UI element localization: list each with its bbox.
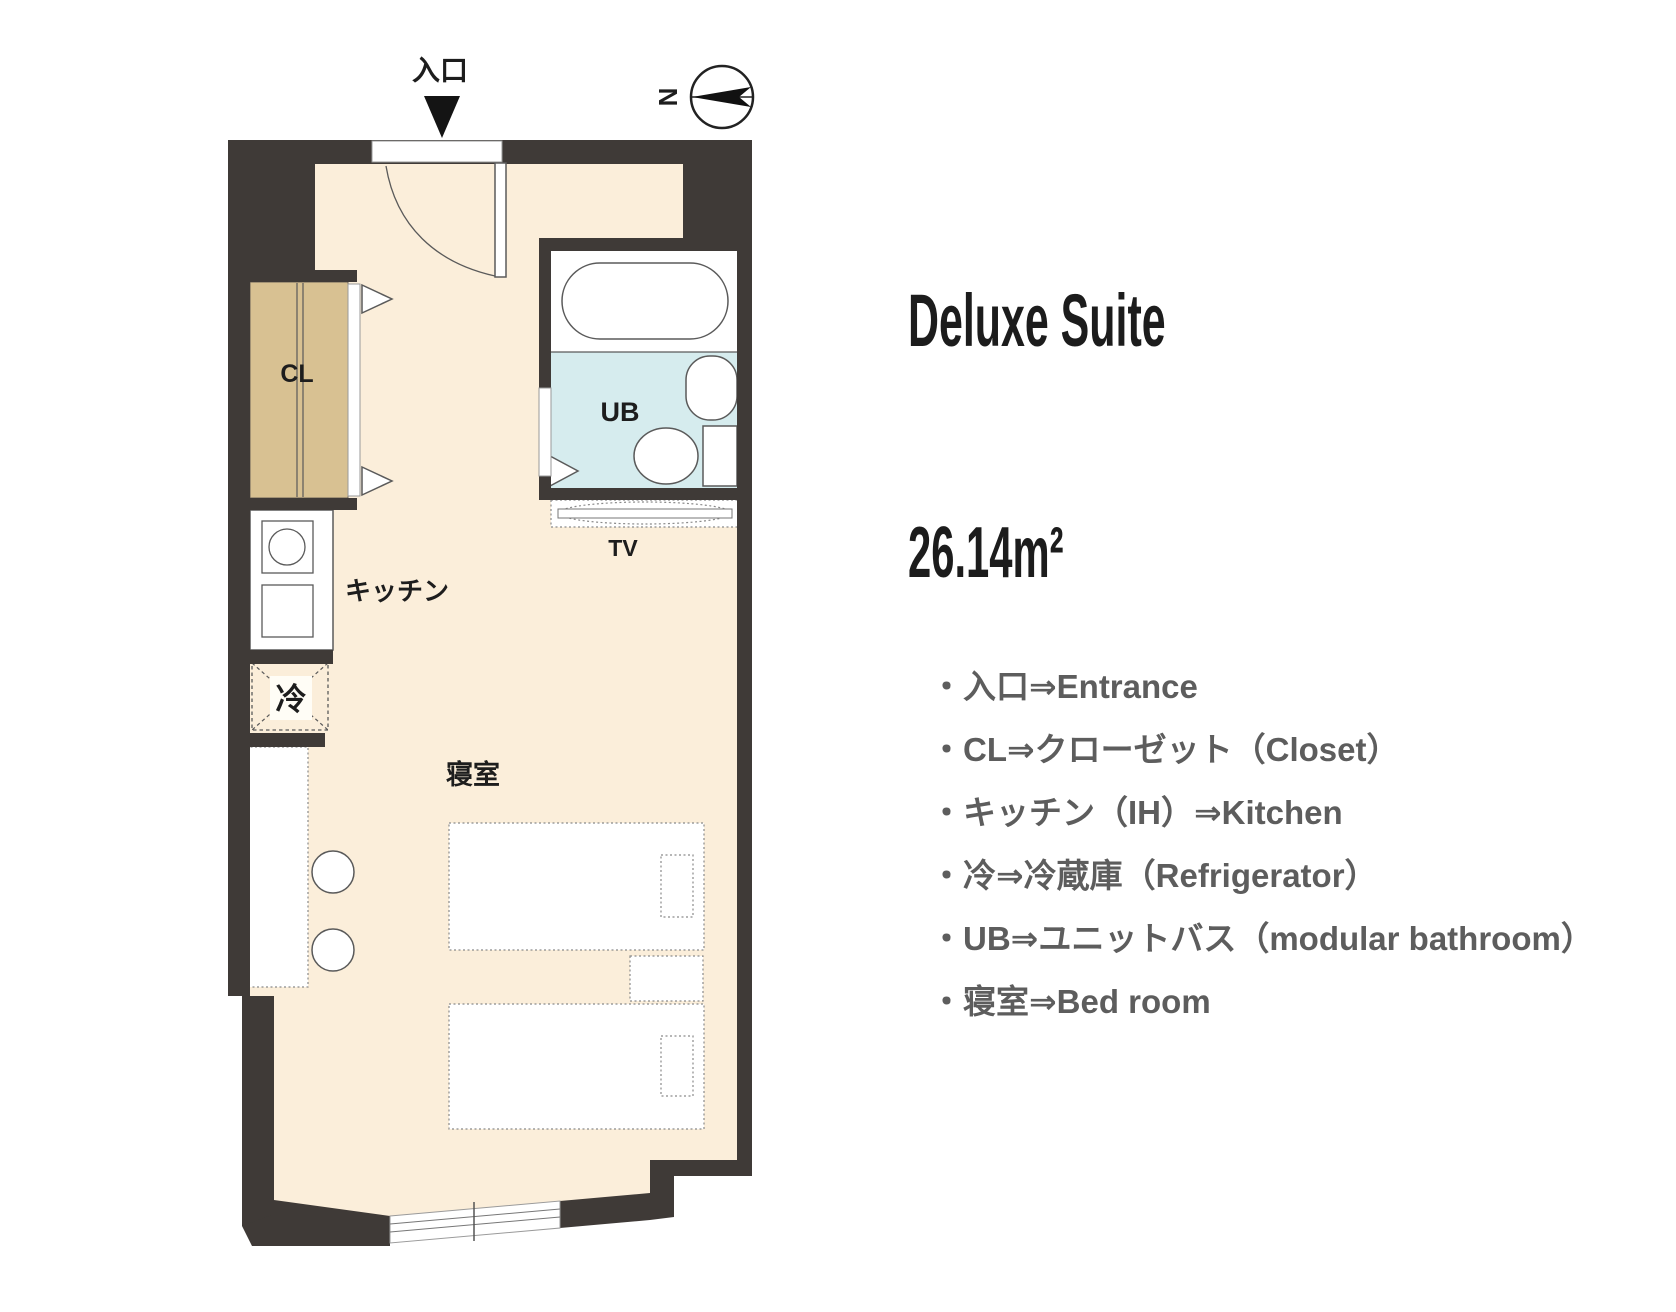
legend-item-entrance: ・入口⇒Entrance bbox=[930, 652, 1594, 715]
legend-item-unit-bath: ・UB⇒ユニットバス（modular bathroom） bbox=[930, 904, 1594, 967]
wall-segment bbox=[248, 270, 357, 282]
wall-segment bbox=[242, 733, 325, 747]
wall-segment bbox=[683, 164, 737, 238]
toilet-bowl bbox=[634, 428, 698, 484]
wall-segment bbox=[650, 1160, 752, 1176]
wall-segment bbox=[242, 996, 274, 1226]
refrigerator-label: 冷 bbox=[276, 682, 307, 717]
toilet-tank bbox=[703, 426, 737, 486]
tv-board bbox=[551, 500, 741, 527]
wall-segment bbox=[539, 251, 551, 388]
counter bbox=[246, 747, 308, 987]
closet-door-track bbox=[348, 284, 360, 496]
stool bbox=[312, 929, 354, 971]
bathroom-sink bbox=[686, 356, 737, 420]
compass-north-label: N bbox=[653, 88, 683, 107]
entrance-doorway bbox=[372, 141, 502, 162]
closet-label: CL bbox=[280, 360, 313, 388]
entrance-label: 入口 bbox=[412, 55, 468, 86]
legend-item-closet: ・CL⇒クローゼット（Closet） bbox=[930, 715, 1594, 778]
bath-label: UB bbox=[601, 397, 640, 427]
pillow bbox=[661, 1036, 693, 1096]
wall-segment bbox=[737, 164, 752, 1176]
pillow bbox=[661, 855, 693, 917]
entrance-door-leaf bbox=[495, 163, 506, 277]
legend-item-kitchen: ・キッチン（IH）⇒Kitchen bbox=[930, 778, 1594, 841]
bath-door-opening bbox=[539, 388, 551, 476]
bathtub bbox=[562, 263, 728, 339]
floor-area-value: 26.14m² bbox=[908, 512, 1064, 594]
wall-segment bbox=[539, 488, 752, 500]
bedroom-label: 寝室 bbox=[446, 759, 500, 790]
page-title: Deluxe Suite bbox=[908, 278, 1166, 363]
legend-item-refrigerator: ・冷⇒冷蔵庫（Refrigerator） bbox=[930, 841, 1594, 904]
wall-segment bbox=[539, 238, 737, 251]
closet-area bbox=[250, 282, 348, 498]
wall-segment bbox=[250, 164, 315, 270]
kitchen-label: キッチン bbox=[345, 576, 449, 606]
stool bbox=[312, 851, 354, 893]
nightstand bbox=[630, 956, 703, 1001]
tv-label: TV bbox=[608, 535, 638, 561]
legend: ・入口⇒Entrance ・CL⇒クローゼット（Closet） ・キッチン（IH… bbox=[930, 652, 1594, 1030]
floor-plan-page: 入口 N CL UB TV キッチン 冷 寝室 Deluxe Suite 26.… bbox=[0, 0, 1676, 1312]
entrance-arrow-icon bbox=[424, 96, 460, 138]
floor-plan-drawing: 入口 N CL UB TV キッチン 冷 寝室 bbox=[0, 0, 820, 1312]
wall-segment bbox=[248, 650, 333, 664]
wall-segment bbox=[248, 498, 357, 510]
compass-icon: N bbox=[653, 66, 753, 128]
wall-segment bbox=[228, 164, 250, 996]
legend-item-bedroom: ・寝室⇒Bed room bbox=[930, 967, 1594, 1030]
